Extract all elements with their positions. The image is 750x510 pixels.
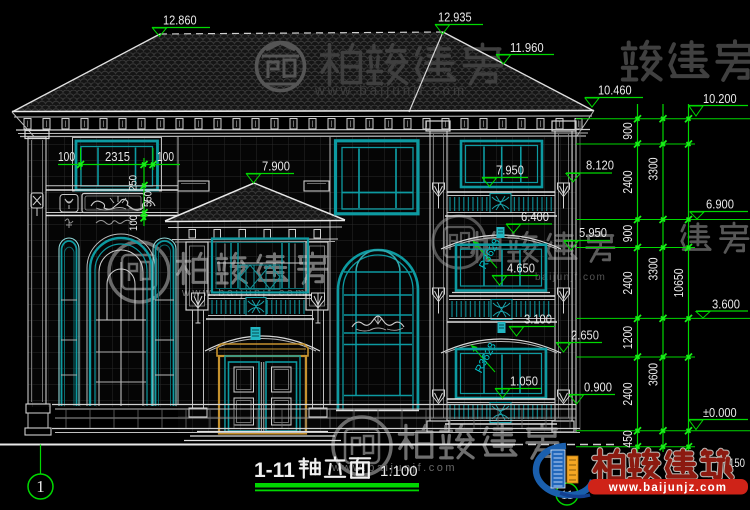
svg-text:1-11: 1-11 <box>254 459 295 482</box>
svg-text:7.900: 7.900 <box>262 159 290 174</box>
svg-text:6.900: 6.900 <box>706 197 734 212</box>
svg-text:8.120: 8.120 <box>586 158 614 173</box>
svg-text:www.baijunjf.com: www.baijunjf.com <box>314 83 467 98</box>
svg-text:5.950: 5.950 <box>579 225 607 240</box>
svg-text:10.460: 10.460 <box>598 83 632 98</box>
svg-text:3.100: 3.100 <box>524 312 552 327</box>
svg-text:100: 100 <box>58 149 75 164</box>
svg-text:7.950: 7.950 <box>496 163 524 178</box>
svg-text:100: 100 <box>128 215 140 231</box>
svg-text:900: 900 <box>621 225 635 242</box>
svg-text:12.935: 12.935 <box>438 10 472 25</box>
svg-text:12.860: 12.860 <box>163 13 197 28</box>
svg-text:3600: 3600 <box>647 363 661 386</box>
svg-text:6.400: 6.400 <box>521 209 549 224</box>
svg-text:250: 250 <box>128 175 140 191</box>
svg-text:11.960: 11.960 <box>510 40 544 55</box>
svg-text:550: 550 <box>143 191 155 207</box>
svg-text:2400: 2400 <box>621 170 635 193</box>
svg-text:1.050: 1.050 <box>510 374 538 389</box>
svg-text:10650: 10650 <box>672 268 686 297</box>
svg-text:0.900: 0.900 <box>584 380 612 395</box>
svg-text:2400: 2400 <box>621 382 635 405</box>
svg-text:1200: 1200 <box>621 326 635 349</box>
svg-text:2.650: 2.650 <box>571 328 599 343</box>
svg-text:4.650: 4.650 <box>507 261 535 276</box>
svg-text:10.200: 10.200 <box>703 91 737 106</box>
svg-text:1:100: 1:100 <box>380 463 418 480</box>
svg-text:450: 450 <box>621 430 635 447</box>
svg-text:100: 100 <box>157 149 174 164</box>
svg-text:3.600: 3.600 <box>712 297 740 312</box>
svg-text:www.baijunjz.com: www.baijunjz.com <box>608 482 727 494</box>
svg-text:900: 900 <box>621 122 635 139</box>
svg-text:±0.000: ±0.000 <box>703 405 737 420</box>
svg-text:1: 1 <box>36 477 45 496</box>
svg-text:3300: 3300 <box>647 257 661 280</box>
svg-text:3300: 3300 <box>647 157 661 180</box>
svg-text:2315: 2315 <box>105 149 130 164</box>
svg-text:2400: 2400 <box>621 271 635 294</box>
